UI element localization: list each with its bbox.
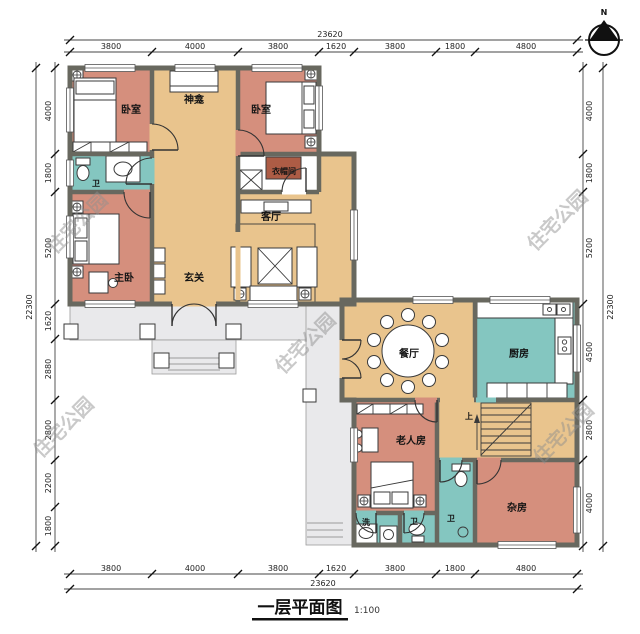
dim-left-3: 1620 xyxy=(44,311,53,331)
washer-icon xyxy=(380,526,397,543)
room-label-bath-mid: 卫 xyxy=(447,514,455,523)
dim-chain-bottom: 3800 4000 3800 1620 3800 1800 4800 23620 xyxy=(64,564,583,593)
room-label-kitchen: 厨房 xyxy=(509,347,529,360)
dim-bottom-total: 23620 xyxy=(310,579,335,588)
dim-top-0: 3800 xyxy=(101,42,121,51)
dim-right-0: 4000 xyxy=(585,101,594,121)
room-label-foyer: 玄关 xyxy=(184,271,204,284)
dim-left-6: 2200 xyxy=(44,473,53,493)
compass-north-label: N xyxy=(601,8,608,17)
dim-top-6: 4800 xyxy=(516,42,536,51)
dim-right-5: 4000 xyxy=(585,493,594,513)
dim-bottom-0: 3800 xyxy=(101,564,121,573)
dim-left-7: 1800 xyxy=(44,516,53,536)
dim-right-3: 4500 xyxy=(585,342,594,362)
watermark: 住宅公园 xyxy=(28,392,98,462)
dim-bottom-4: 3800 xyxy=(385,564,405,573)
dim-chain-right: 4000 1800 5200 4500 2800 4000 22300 xyxy=(579,62,615,552)
dim-bottom-6: 4800 xyxy=(516,564,536,573)
room-label-bath-upper: 卫 xyxy=(92,179,100,188)
dim-left-total: 22300 xyxy=(25,294,34,319)
dim-bottom-5: 1800 xyxy=(445,564,465,573)
room-label-elder: 老人房 xyxy=(395,434,426,447)
dim-top-total: 23620 xyxy=(317,30,342,39)
room-label-master: 主卧 xyxy=(114,271,134,284)
dim-right-total: 22300 xyxy=(606,294,615,319)
watermark: 住宅公园 xyxy=(522,185,592,255)
room-label-bath-small: 卫 xyxy=(410,517,418,526)
dim-chain-top: 3800 4000 3800 1620 3800 1800 4800 23620 xyxy=(64,30,583,56)
desk xyxy=(89,272,108,293)
dim-top-4: 3800 xyxy=(385,42,405,51)
dim-bottom-3: 1620 xyxy=(326,564,346,573)
sink-icon xyxy=(359,528,373,539)
dim-bottom-1: 4000 xyxy=(185,564,205,573)
drawing-scale: 1:100 xyxy=(354,606,380,616)
sink-icon xyxy=(114,162,132,176)
room-label-shrine: 神龛 xyxy=(184,93,205,106)
room-label-cloakroom: 衣帽间 xyxy=(272,166,296,176)
dim-top-3: 1620 xyxy=(326,42,346,51)
dim-right-2: 5200 xyxy=(585,238,594,258)
stairs-up-label: 上 xyxy=(465,411,473,421)
dim-top-5: 1800 xyxy=(445,42,465,51)
dim-left-1: 1800 xyxy=(44,163,53,183)
altar xyxy=(170,71,218,92)
room-label-bedroom-tr: 卧室 xyxy=(251,103,271,116)
room-label-dining: 餐厅 xyxy=(398,347,419,360)
drawing-title-block: 一层平面图 1:100 xyxy=(252,598,380,621)
table xyxy=(362,428,378,452)
sink-icon xyxy=(543,304,556,315)
room-label-storage: 杂房 xyxy=(507,501,527,514)
dim-left-0: 4000 xyxy=(44,101,53,121)
room-label-bedroom-tl: 卧室 xyxy=(121,103,141,116)
floor-plan-drawing: 卧室 神龛 卧室 卫 衣帽间 主卧 玄关 客厅 餐厅 厨房 老人房 杂房 卫 卫… xyxy=(0,0,640,630)
drawing-title: 一层平面图 xyxy=(258,598,343,618)
dim-left-4: 2880 xyxy=(44,359,53,379)
dim-chain-left: 4000 1800 5200 1620 2880 2800 2200 1800 … xyxy=(25,62,59,552)
toilet-icon xyxy=(76,158,90,165)
room-label-living: 客厅 xyxy=(260,210,281,223)
room-label-laundry: 洗 xyxy=(362,517,370,527)
floor-plan-page: 卧室 神龛 卧室 卫 衣帽间 主卧 玄关 客厅 餐厅 厨房 老人房 杂房 卫 卫… xyxy=(0,0,640,630)
sofa xyxy=(297,247,317,287)
dim-bottom-2: 3800 xyxy=(268,564,288,573)
north-compass-icon: N xyxy=(585,8,623,55)
room-bath-mid xyxy=(437,460,475,545)
dim-top-1: 4000 xyxy=(185,42,205,51)
sofa xyxy=(231,247,251,287)
dim-top-2: 3800 xyxy=(268,42,288,51)
dim-right-1: 1800 xyxy=(585,163,594,183)
